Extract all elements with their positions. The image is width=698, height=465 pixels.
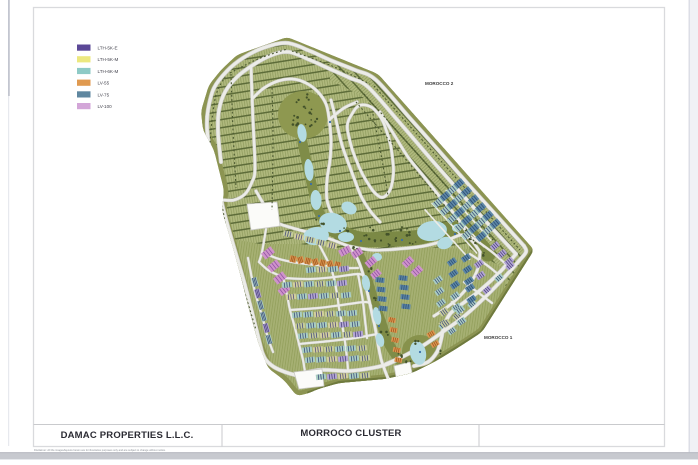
svg-text:LTH-5K-M: LTH-5K-M [98, 57, 119, 62]
svg-text:MOROCCO 2: MOROCCO 2 [425, 81, 454, 86]
svg-text:LV-55: LV-55 [98, 81, 110, 86]
svg-text:LTH-5K-E: LTH-5K-E [98, 46, 118, 51]
svg-text:MORROCO CLUSTER: MORROCO CLUSTER [300, 428, 401, 439]
svg-text:MOROCCO 1: MOROCCO 1 [484, 335, 513, 340]
svg-text:Disclaimer: All the images/lay: Disclaimer: All the images/layouts herei… [34, 448, 166, 452]
svg-text:LTH-6K-M: LTH-6K-M [98, 69, 119, 74]
svg-text:LV-100: LV-100 [98, 104, 113, 109]
svg-text:LV-75: LV-75 [98, 92, 110, 97]
svg-text:DAMAC PROPERTIES L.L.C.: DAMAC PROPERTIES L.L.C. [61, 430, 194, 441]
